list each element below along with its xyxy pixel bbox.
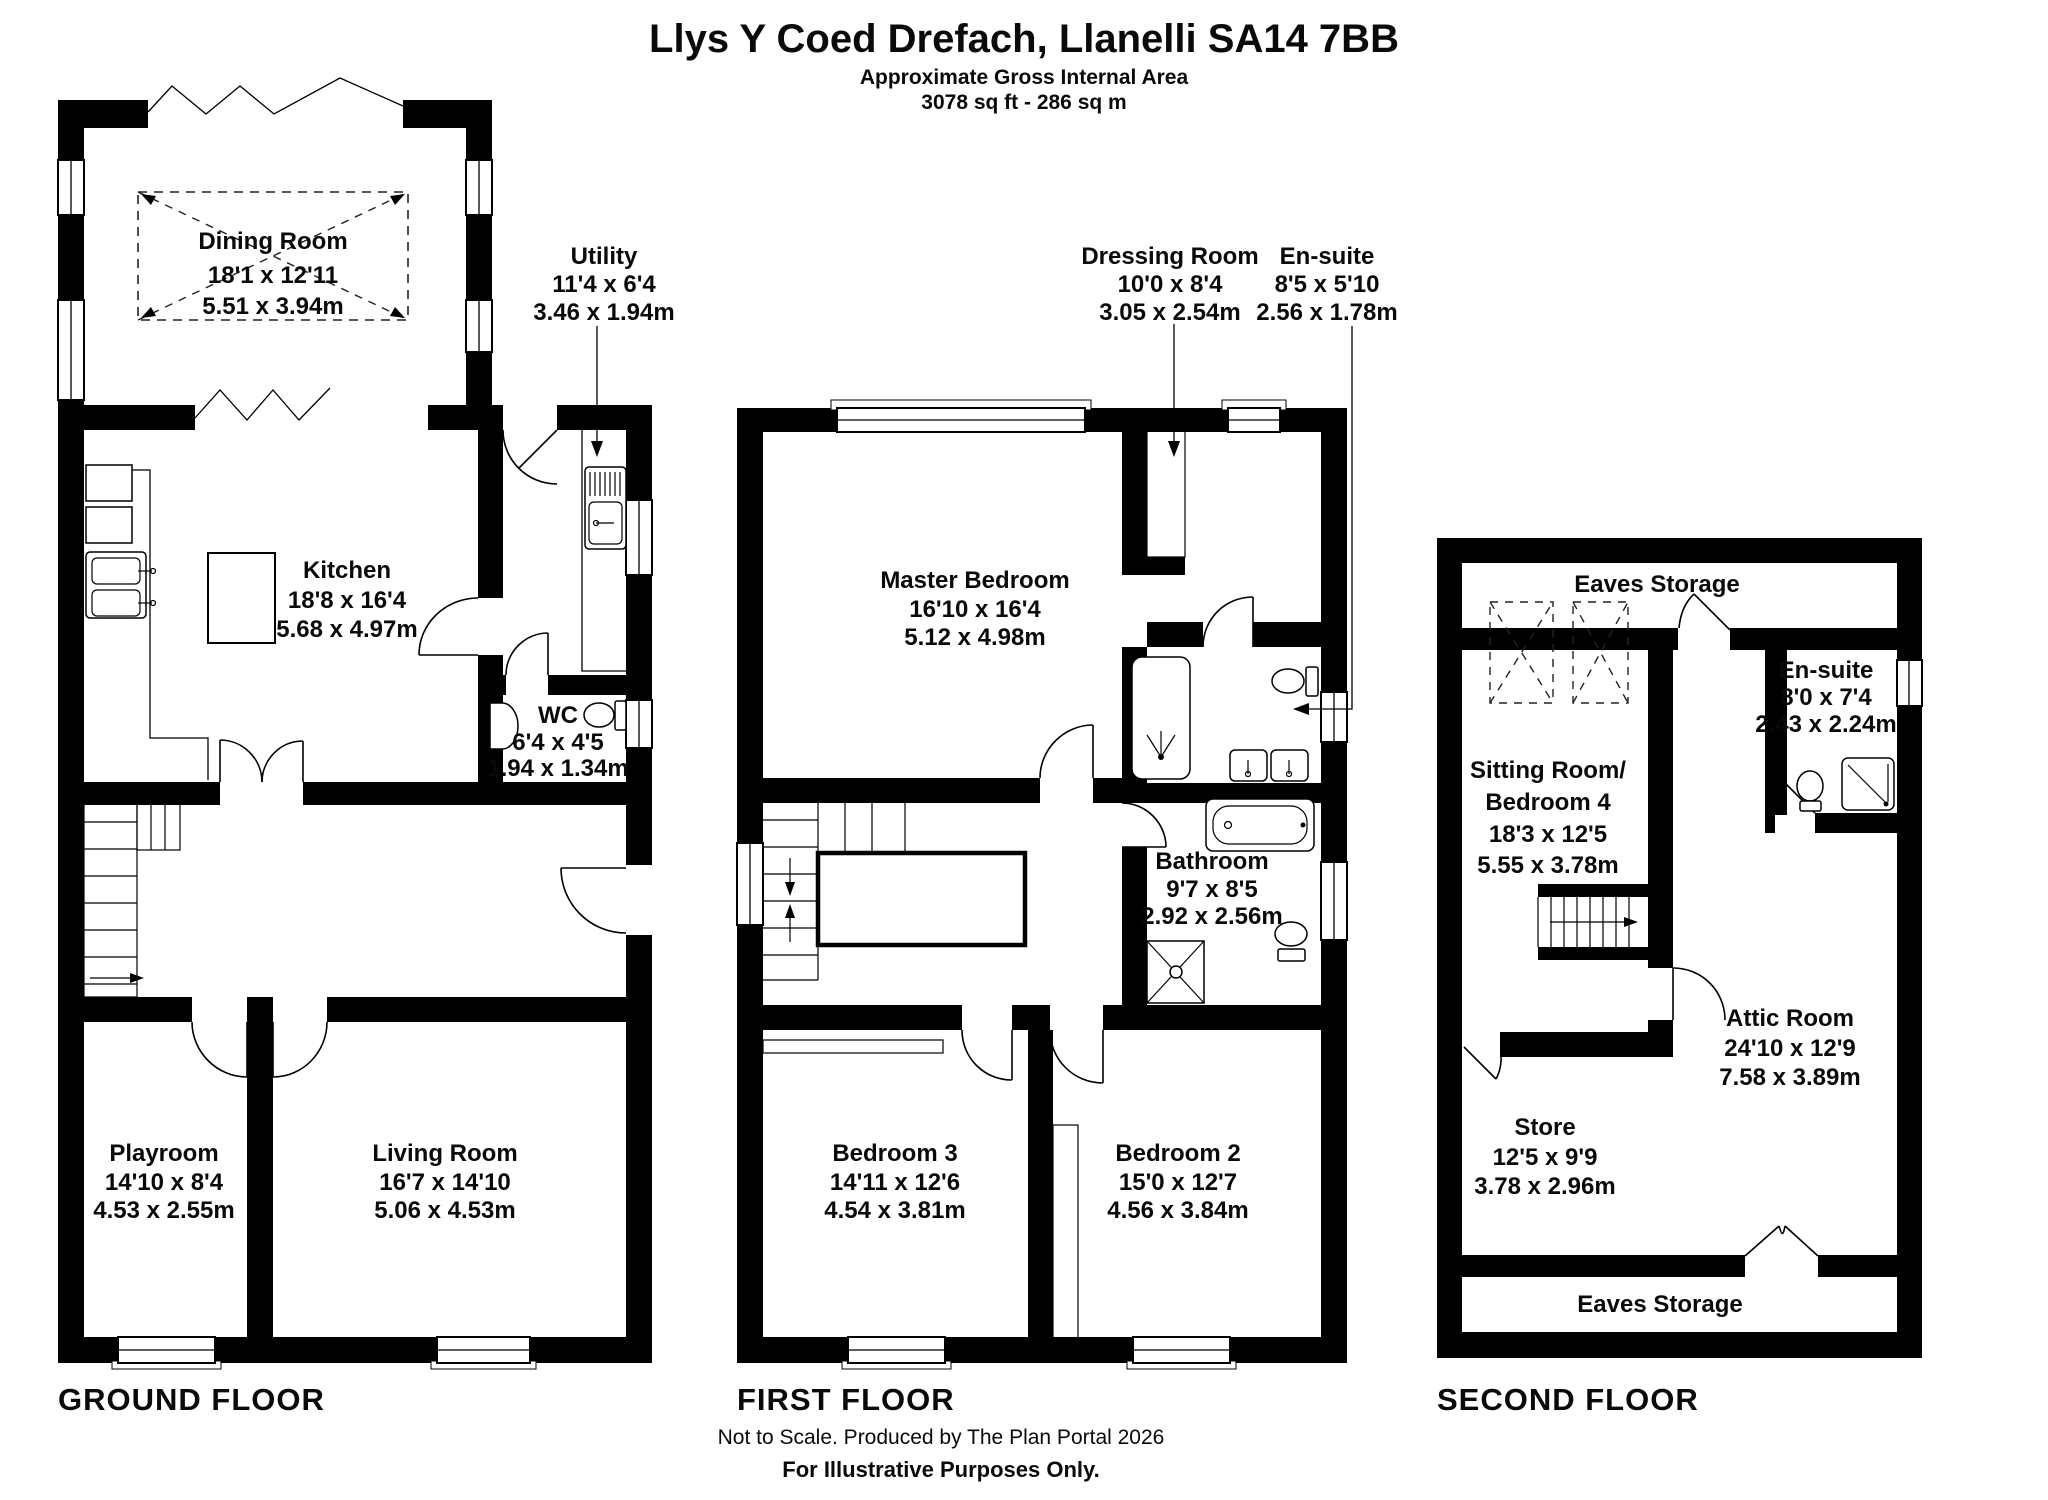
page-title: Llys Y Coed Drefach, Llanelli SA14 7BB [649,17,1399,61]
living-room-imperial: 16'7 x 14'10 [379,1169,511,1196]
bathroom-imperial: 9'7 x 8'5 [1166,876,1258,903]
dressing-room-name: Dressing Room [1081,243,1258,270]
stair-void [818,853,1025,945]
eaves-storage-top-label: Eaves Storage [1574,571,1739,598]
ensuite2-metric: 2.43 x 2.24m [1755,711,1896,738]
bathroom-name: Bathroom [1155,848,1268,875]
second-floor-label: SECOND FLOOR [1437,1382,1699,1417]
playroom-imperial: 14'10 x 8'4 [105,1169,224,1196]
living-room-metric: 5.06 x 4.53m [374,1197,515,1224]
dining-room-name: Dining Room [198,228,347,255]
footer-disclaimer: Not to Scale. Produced by The Plan Porta… [718,1426,1165,1449]
master-bedroom-name: Master Bedroom [880,567,1069,594]
attic-room-metric: 7.58 x 3.89m [1719,1064,1860,1091]
kitchen-island [208,553,275,643]
utility-draining-board [590,472,620,496]
bedroom3-imperial: 14'11 x 12'6 [830,1169,960,1196]
utility-imperial: 11'4 x 6'4 [552,271,656,298]
wc-door-opening [506,675,548,695]
wc-toilet-icon [584,703,614,727]
living-room-name: Living Room [372,1140,517,1167]
ensuite2-imperial: 8'0 x 7'4 [1780,684,1872,711]
kitchen-metric: 5.68 x 4.97m [276,616,417,643]
bedroom2-metric: 4.56 x 3.84m [1107,1197,1248,1224]
dressing-room-imperial: 10'0 x 8'4 [1118,271,1223,298]
oven-icon [86,465,132,501]
utility-name: Utility [571,243,638,270]
dining-room-metric: 5.51 x 3.94m [202,293,343,320]
bedroom3-name: Bedroom 3 [832,1140,957,1167]
sitting-room-name-line1: Sitting Room/ [1470,757,1626,784]
dressing-room-metric: 3.05 x 2.54m [1099,299,1240,326]
wc-metric: 1.94 x 1.34m [487,755,628,782]
sitting-room-metric: 5.55 x 3.78m [1477,852,1618,879]
gross-internal-area: 3078 sq ft - 286 sq m [921,91,1126,114]
utility-metric: 3.46 x 1.94m [533,299,674,326]
playroom-name: Playroom [109,1140,218,1167]
ensuite1-imperial: 8'5 x 5'10 [1275,271,1380,298]
master-bedroom-metric: 5.12 x 4.98m [904,624,1045,651]
bedroom2-imperial: 15'0 x 12'7 [1119,1169,1237,1196]
kitchen-name: Kitchen [303,557,391,584]
second-windows [1897,660,1922,706]
ensuite1-name: En-suite [1280,243,1375,270]
playroom-metric: 4.53 x 2.55m [93,1197,234,1224]
kitchen-imperial: 18'8 x 16'4 [288,587,407,614]
second-staircase [1538,884,1648,960]
ensuite1-metric: 2.56 x 1.78m [1256,299,1397,326]
bedroom2-name: Bedroom 2 [1115,1140,1240,1167]
floorplan-page: Llys Y Coed Drefach, Llanelli SA14 7BB A… [0,0,2048,1500]
page-subtitle: Approximate Gross Internal Area [860,66,1189,89]
attic-room-name: Attic Room [1726,1005,1854,1032]
sitting-room-imperial: 18'3 x 12'5 [1489,821,1607,848]
bathroom-metric: 2.92 x 2.56m [1141,903,1282,930]
first-floor-label: FIRST FLOOR [737,1382,955,1417]
hob-icon [86,507,132,543]
wc-name: WC [538,702,578,729]
floorplan-drawing: Llys Y Coed Drefach, Llanelli SA14 7BB A… [0,0,2048,1500]
kitchen-door-opening [478,598,503,655]
eaves-storage-bottom-label: Eaves Storage [1577,1291,1742,1318]
bathroom-shower-icon [1147,941,1204,1003]
bath-icon [1206,799,1314,851]
ensuite2-toilet-icon [1797,771,1823,811]
store-metric: 3.78 x 2.96m [1474,1173,1615,1200]
kitchen-sink-icon [86,552,156,618]
attic-room-imperial: 24'10 x 12'9 [1724,1035,1856,1062]
sitting-room-name-line2: Bedroom 4 [1485,789,1611,816]
wc-imperial: 6'4 x 4'5 [512,729,604,756]
master-bedroom-imperial: 16'10 x 16'4 [909,596,1041,623]
front-door-opening [626,865,652,935]
ensuite1-shower-icon [1132,657,1190,779]
dining-room-imperial: 18'1 x 12'11 [208,262,338,289]
store-name: Store [1514,1114,1575,1141]
footer-illustrative: For Illustrative Purposes Only. [782,1457,1099,1482]
bedroom3-metric: 4.54 x 3.81m [824,1197,965,1224]
ensuite2-shower-icon [1842,758,1894,810]
ensuite1-toilet-icon [1272,667,1318,696]
ground-floor-label: GROUND FLOOR [58,1382,325,1417]
ensuite2-name: En-suite [1779,657,1874,684]
store-imperial: 12'5 x 9'9 [1493,1144,1598,1171]
